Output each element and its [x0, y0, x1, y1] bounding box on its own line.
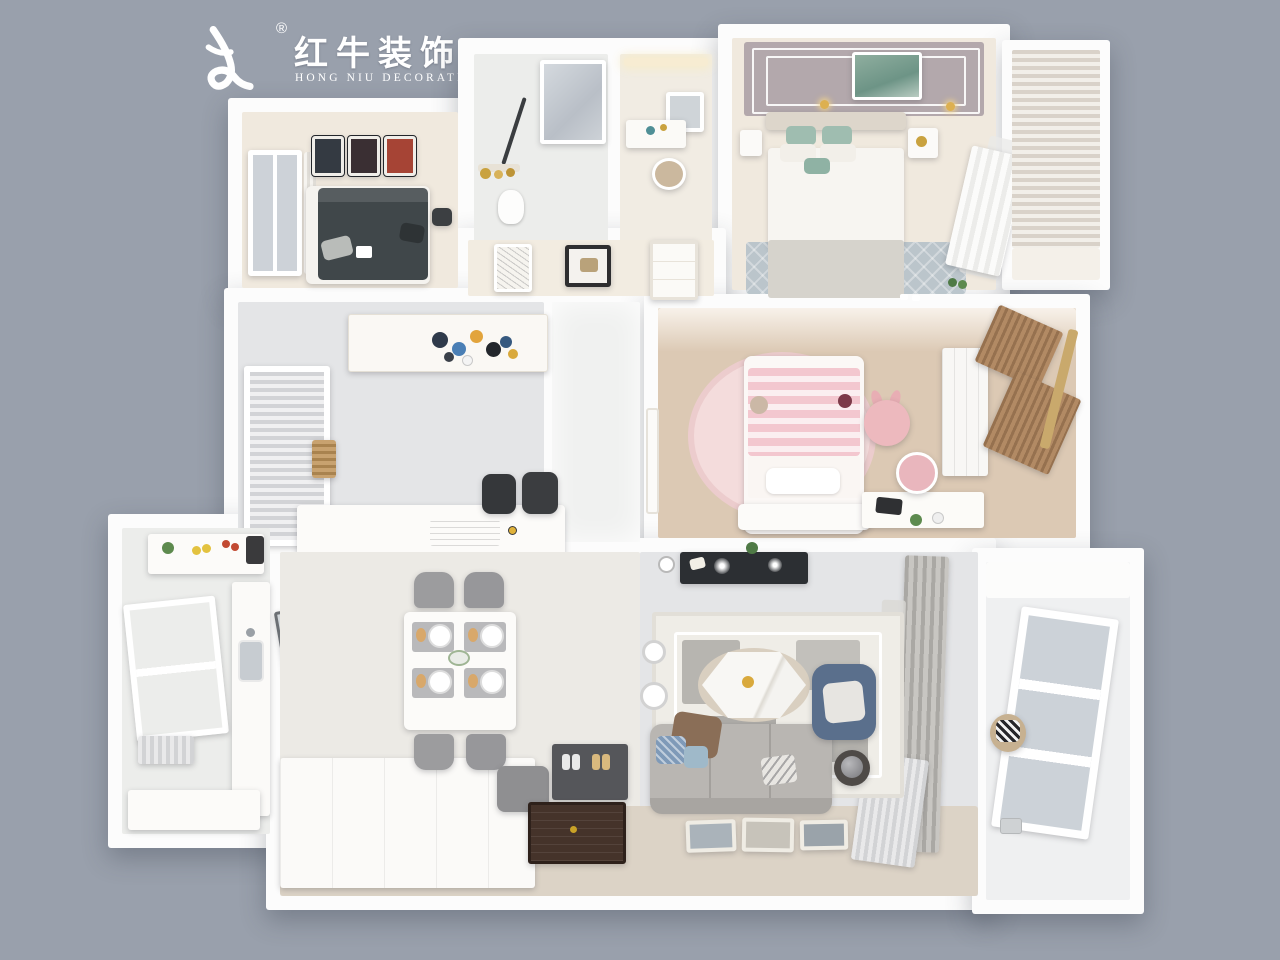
hallway-door	[650, 240, 698, 300]
brand-logo: ® 红牛装饰 HONG NIU DECORATION	[202, 18, 482, 102]
pendant-blue	[452, 342, 466, 356]
glass-shower	[540, 60, 606, 144]
plate-1	[428, 624, 452, 648]
guest-stool	[432, 208, 452, 226]
wall-art-frame-2	[348, 136, 380, 176]
kitchen-sink	[238, 640, 264, 682]
kitchen-greens	[162, 542, 174, 554]
dining-chair-top-2	[464, 572, 504, 608]
pendant-yellow	[470, 330, 483, 343]
kitchen-faucet	[246, 628, 255, 637]
island-sketch-decor	[430, 520, 500, 546]
kids-laptop	[875, 497, 903, 516]
bull-logo-icon	[202, 20, 282, 100]
bread-1	[416, 628, 426, 642]
sconce-right	[946, 102, 955, 111]
guest-pillow-dark	[399, 222, 426, 244]
zebra-towel	[996, 720, 1020, 742]
master-plant	[948, 278, 957, 287]
floor-lamp-1	[642, 640, 666, 664]
shoe-cabinet	[552, 744, 628, 800]
sofa-pillow-blue-pattern	[656, 736, 686, 764]
gold-tray	[916, 136, 927, 147]
kids-bed-bench	[738, 504, 870, 530]
plate-3	[428, 670, 452, 694]
kids-plant	[910, 514, 922, 526]
tea-chair-1	[482, 474, 516, 514]
pendant-dark-2	[444, 352, 454, 362]
master-wall-art	[852, 52, 922, 100]
tv-light-glow-1	[714, 558, 730, 574]
rabbit-plush-chair	[864, 400, 910, 446]
tea-chair-2	[522, 472, 558, 514]
wood-slat-stack	[312, 440, 336, 478]
master-balcony-shutters	[1012, 50, 1100, 248]
sconce-left	[820, 100, 829, 109]
armchair-cushion	[822, 680, 866, 724]
brand-name-zh: 红牛装饰	[294, 26, 462, 75]
kids-wardrobe	[942, 348, 988, 476]
living-plant	[746, 542, 758, 554]
pillow-green-2	[822, 126, 852, 145]
guest-open-book	[356, 246, 372, 258]
kids-door	[646, 408, 659, 514]
kitchen-radiator	[138, 736, 194, 764]
kids-desk-chair	[896, 452, 938, 494]
hallway-pattern-panel	[494, 244, 532, 292]
leaning-frame-3	[800, 820, 849, 851]
pendant-blue-2	[500, 336, 512, 348]
tea-ceiling-panel	[348, 314, 548, 372]
pillow-green-1	[786, 126, 816, 145]
guest-window	[248, 150, 302, 276]
pendant-white	[462, 355, 473, 366]
bread-3	[416, 674, 426, 688]
floor-lamp-2	[640, 682, 668, 710]
toilet	[498, 190, 524, 224]
kitchen-lemons	[192, 546, 201, 555]
kids-duvet-striped	[748, 368, 860, 456]
nightstand-left	[740, 130, 762, 156]
tv-light-glow-2	[768, 558, 782, 572]
master-balcony-sill	[1012, 248, 1100, 280]
dining-chair-bottom-1	[414, 734, 454, 770]
kitchen-hood	[246, 536, 264, 564]
master-duvet	[768, 148, 904, 248]
pendant-navy	[432, 332, 448, 348]
vanity-chair	[652, 158, 686, 190]
dining-chair-bottom-2	[466, 734, 506, 770]
island-bee-decor	[508, 526, 517, 535]
kitchen-cabinet-bottom	[128, 790, 260, 830]
flower-centerpiece	[448, 650, 470, 666]
kids-desk-lamp	[932, 512, 944, 524]
hallway-vertical-floor	[552, 302, 640, 542]
coffee-table-gold-bowl	[742, 676, 754, 688]
pendant-yellow-2	[508, 349, 518, 359]
kitchen-counter-right	[232, 582, 270, 816]
registered-mark: ®	[276, 20, 287, 37]
vanity-cove-light	[624, 58, 708, 66]
kitchen-tomatoes	[222, 540, 230, 548]
balcony-ledge	[986, 562, 1130, 598]
master-blanket	[768, 240, 904, 298]
leaning-frame-1	[685, 819, 736, 853]
leaning-frame-2	[742, 818, 795, 853]
entry-keys	[570, 826, 577, 833]
vanity-item-teal	[646, 126, 655, 135]
master-slippers	[900, 294, 908, 300]
slippers-tan	[592, 754, 600, 770]
wall-art-frame-1	[312, 136, 344, 176]
plate-2	[480, 624, 504, 648]
gold-vase-2	[494, 170, 503, 179]
gold-vase-1	[480, 168, 491, 179]
vanity-desk	[626, 120, 686, 148]
kids-pillow	[766, 468, 840, 494]
wall-art-frame-3	[384, 136, 416, 176]
sofa-pillow-teal	[684, 746, 708, 768]
slippers-white	[562, 754, 570, 770]
hallway-art-inner	[580, 258, 598, 272]
dining-chair-top-1	[414, 572, 454, 608]
gold-vase-3	[506, 168, 515, 177]
pendant-black	[486, 342, 501, 357]
pillow-green-small	[804, 158, 830, 174]
wall-clock	[658, 556, 675, 573]
vanity-item-gold	[660, 124, 667, 131]
kitchen-window	[123, 596, 229, 743]
side-table-sphere	[841, 756, 863, 778]
plate-4	[480, 670, 504, 694]
entry-door-mat	[528, 802, 626, 864]
teddy-bear	[750, 396, 768, 414]
sofa-back-edge	[650, 798, 832, 814]
floor-drain	[1000, 818, 1022, 834]
floorplan-scene: ® 红牛装饰 HONG NIU DECORATION	[0, 0, 1280, 960]
bread-4	[468, 674, 478, 688]
bread-2	[468, 628, 478, 642]
dark-red-ball	[838, 394, 852, 408]
sofa-pillow-diamond	[760, 754, 798, 786]
